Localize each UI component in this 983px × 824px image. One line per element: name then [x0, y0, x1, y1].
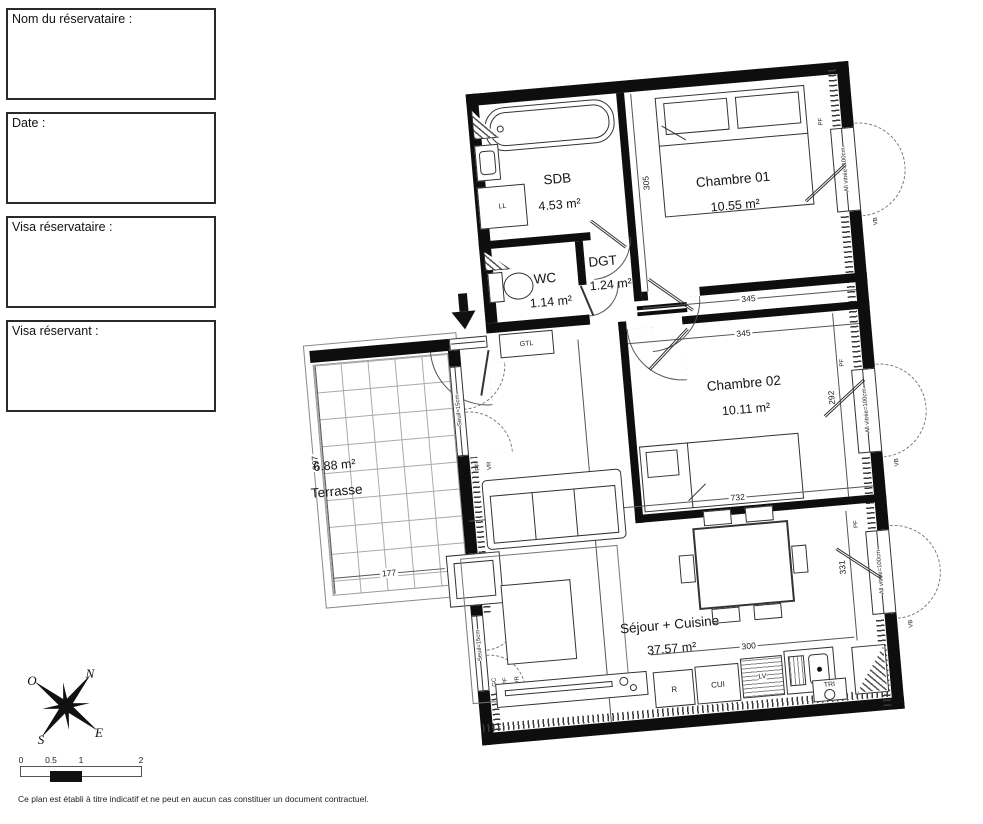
door-type-label: PF	[475, 463, 482, 471]
room-label-dgt-area: 1.24 m²	[589, 276, 632, 294]
scale-tick: 2	[139, 755, 144, 765]
form-box-label: Nom du réservataire :	[8, 10, 214, 26]
fridge-label: R	[671, 685, 678, 694]
room-label-wc: WC	[533, 270, 557, 287]
door-arc	[461, 362, 509, 410]
window-type-label: PF	[839, 359, 846, 367]
footer-note: Ce plan est établi à titre indicatif et …	[18, 794, 958, 804]
washbasin-bowl	[479, 150, 497, 175]
pillow	[663, 98, 730, 135]
room-label-wc-area: 1.14 m²	[529, 293, 572, 311]
form-box-visa-reservant: Visa réservant :	[6, 320, 216, 412]
door-arc	[627, 324, 688, 385]
scale-tick: 0.5	[45, 755, 57, 765]
door-arc	[465, 408, 513, 456]
room-label-sdb-area: 4.53 m²	[538, 196, 581, 214]
room-label-chambre02-area: 10.11 m²	[721, 400, 770, 418]
form-box-visa-reservataire: Visa réservataire :	[6, 216, 216, 308]
dining-table	[692, 520, 795, 610]
scale-tick: 0	[19, 755, 24, 765]
wall-segment	[682, 300, 870, 324]
room-label-sejour: Séjour + Cuisine	[619, 613, 719, 637]
floor-plan: 397 177 6.88 m² Terrasse LL SDB 4.53 m²	[211, 55, 980, 824]
form-box-date: Date :	[6, 112, 216, 204]
entry-arrow-icon	[458, 293, 469, 312]
compass-n: N	[85, 666, 96, 681]
scale-bar-segment	[50, 771, 82, 782]
floor-plan-page: { "form_boxes": [ {"label": "Nom du rése…	[0, 0, 983, 800]
compass-s: S	[38, 732, 45, 747]
room-label-dgt: DGT	[588, 252, 618, 269]
coffee-table	[501, 579, 578, 665]
entry-arrow-icon	[452, 310, 477, 330]
gtl-label: GTL	[519, 340, 533, 348]
form-box-label: Visa réservataire :	[8, 218, 214, 234]
window-type-label: PF	[853, 520, 860, 528]
room-label-sdb: SDB	[543, 170, 572, 187]
dimension-label: 732	[728, 491, 747, 503]
toilet-tank	[487, 272, 505, 303]
dimension-label: 345	[739, 293, 758, 305]
cooker-label: CUI	[711, 680, 726, 690]
sink-drainer	[788, 655, 807, 686]
dimension-label: 300	[739, 640, 758, 652]
room-label-chambre01-area: 10.55 m²	[710, 196, 760, 214]
wall-segment	[575, 241, 587, 286]
window-type-label: PF	[818, 117, 825, 125]
compass-rose: N E S O	[18, 658, 114, 754]
terrace-tiles	[313, 353, 469, 596]
chair	[791, 544, 808, 573]
tri-label: TRI	[824, 681, 836, 689]
shutter-label: VB	[908, 619, 915, 628]
form-box-label: Visa réservant :	[8, 322, 214, 338]
compass-o: O	[27, 673, 37, 688]
chair	[753, 603, 782, 620]
washing-machine-label: LL	[498, 203, 506, 211]
chair	[703, 509, 732, 526]
room-label-chambre02: Chambre 02	[706, 373, 781, 394]
pillow	[645, 449, 679, 478]
chair	[679, 554, 696, 583]
form-box-label: Date :	[8, 114, 214, 130]
scale-tick: 1	[79, 755, 84, 765]
chair	[745, 505, 774, 522]
wall-segment	[699, 272, 867, 296]
dimension-label: 331	[836, 558, 848, 577]
dimension-label: 177	[380, 567, 399, 579]
shutter-label: VB	[894, 458, 901, 467]
dishwasher-label: LV	[758, 673, 767, 681]
shutter-label: VR	[487, 461, 494, 470]
shutter-label: VB	[873, 217, 880, 226]
dimension-label: 345	[734, 327, 753, 339]
compass-e: E	[94, 725, 103, 740]
form-box-nom: Nom du réservataire :	[6, 8, 216, 100]
dimension-label: 305	[640, 174, 652, 193]
pillow	[735, 91, 802, 128]
